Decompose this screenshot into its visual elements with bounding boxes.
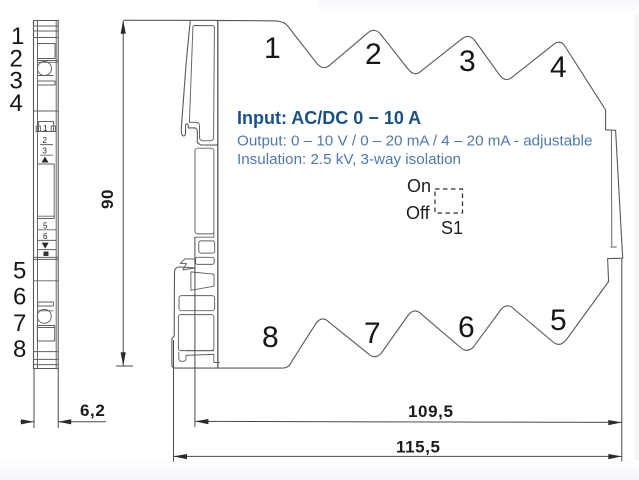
svg-text:1: 1 [264, 32, 281, 65]
svg-text:6: 6 [43, 232, 48, 241]
svg-text:7: 7 [13, 310, 26, 337]
svg-text:6,2: 6,2 [80, 401, 105, 420]
svg-text:4: 4 [10, 90, 23, 117]
svg-text:109,5: 109,5 [408, 402, 454, 421]
svg-text:Input: AC/DC 0 − 10 A: Input: AC/DC 0 − 10 A [237, 108, 421, 128]
svg-text:2: 2 [365, 38, 382, 71]
svg-text:Off: Off [406, 203, 431, 223]
svg-text:8: 8 [262, 321, 279, 354]
svg-text:S1: S1 [441, 218, 463, 238]
svg-text:2: 2 [43, 136, 48, 145]
svg-text:3: 3 [43, 147, 48, 156]
svg-text:6: 6 [13, 284, 26, 311]
svg-text:4: 4 [550, 51, 567, 84]
svg-text:5: 5 [13, 258, 26, 285]
svg-text:Insulation: 2.5 kV, 3-way isol: Insulation: 2.5 kV, 3-way isolation [237, 151, 461, 168]
svg-text:8: 8 [13, 336, 26, 363]
svg-text:90: 90 [98, 189, 117, 209]
svg-text:On: On [407, 176, 431, 196]
svg-text:6: 6 [458, 311, 475, 344]
svg-text:1: 1 [43, 124, 48, 133]
svg-text:5: 5 [43, 222, 48, 231]
svg-text:5: 5 [550, 304, 567, 337]
svg-text:Output: 0 – 10 V / 0 – 20 mA /: Output: 0 – 10 V / 0 – 20 mA / 4 – 20 mA… [237, 133, 592, 150]
svg-text:115,5: 115,5 [396, 438, 441, 457]
svg-text:7: 7 [364, 317, 381, 350]
svg-text:3: 3 [459, 45, 476, 78]
